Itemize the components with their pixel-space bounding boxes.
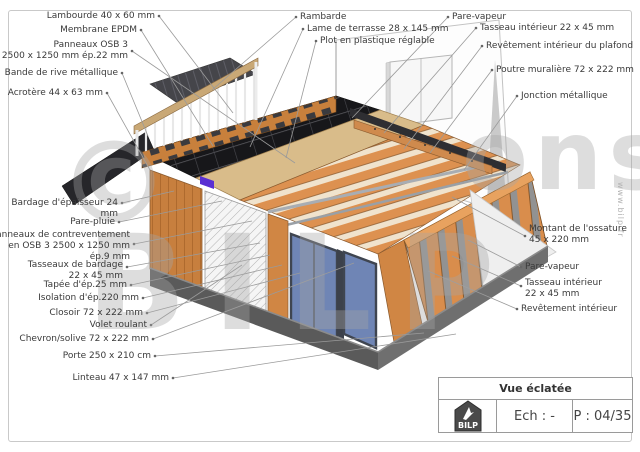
glazed-door-2 (344, 252, 376, 348)
drawing-title: Vue éclatée (439, 378, 632, 400)
website-url-vertical: www.bilp.fr (616, 182, 625, 238)
scale-cell: Ech : - (497, 400, 573, 432)
title-block: Vue éclatée BILP Ech : - P : 04/35 (438, 377, 633, 433)
svg-text:BILP: BILP (457, 421, 477, 430)
bilp-logo-badge: BILP (453, 400, 483, 432)
page-number-cell: P : 04/35 (573, 400, 632, 432)
wall-post-1 (268, 214, 288, 320)
exploded-view-plan-page: © BILP ons Lambourde 40 x 60 mm Membrane… (0, 0, 640, 452)
bilp-logo: BILP (439, 400, 497, 432)
